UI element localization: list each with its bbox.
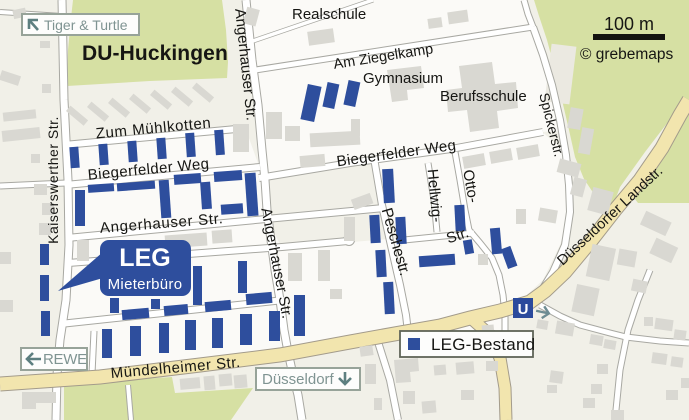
svg-text:Gymnasium: Gymnasium [363,70,443,87]
svg-text:LEG: LEG [119,244,170,272]
svg-text:DU-Huckingen: DU-Huckingen [82,42,228,65]
svg-text:Tiger & Turtle: Tiger & Turtle [44,17,128,33]
svg-text:REWE: REWE [43,351,87,368]
svg-text:100 m: 100 m [604,14,654,34]
svg-text:Düsseldorf: Düsseldorf [262,371,335,388]
svg-text:Realschule: Realschule [292,6,366,23]
svg-text:Berufsschule: Berufsschule [440,88,527,105]
svg-text:Mieterbüro: Mieterbüro [108,276,183,293]
svg-text:Kaiserswerther Str.: Kaiserswerther Str. [45,116,61,244]
svg-text:© grebemaps: © grebemaps [580,46,674,63]
svg-text:LEG-Bestand: LEG-Bestand [431,335,535,354]
svg-text:U: U [518,301,529,318]
